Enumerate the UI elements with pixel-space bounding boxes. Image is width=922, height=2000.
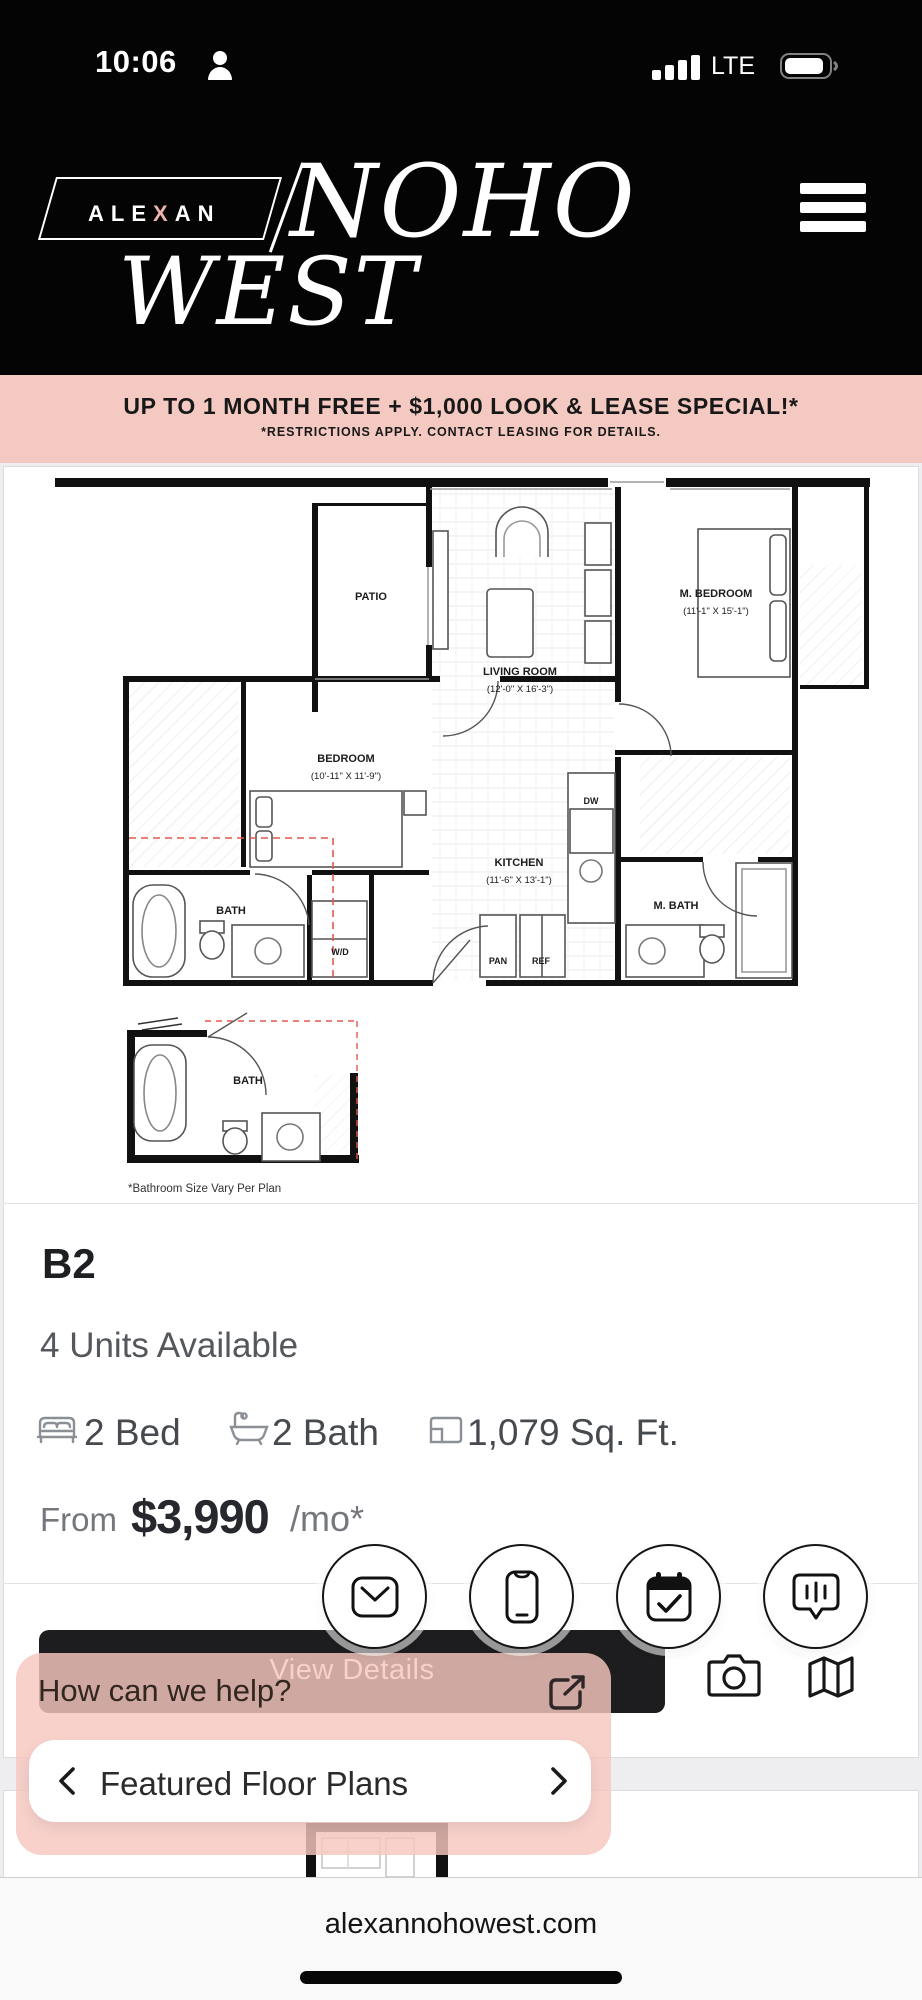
browser-url[interactable]: alexannohowest.com: [0, 1908, 922, 1941]
carousel-label: Featured Floor Plans: [100, 1765, 408, 1803]
brand-post: AN: [175, 201, 221, 226]
room-label: PATIO: [355, 591, 387, 603]
calendar-check-icon: [642, 1570, 696, 1624]
floor-plan-image: PATIO LIVING ROOM (12'-0" X 16'-3") M. B…: [0, 473, 922, 1203]
floorplan-caption: *Bathroom Size Vary Per Plan: [128, 1183, 281, 1195]
camera-icon[interactable]: [706, 1650, 762, 1700]
room-label: DW: [584, 796, 599, 806]
room-dims: (12'-0" X 16'-3"): [487, 684, 553, 695]
promo-line2: *RESTRICTIONS APPLY. CONTACT LEASING FOR…: [0, 425, 922, 439]
person-icon: [206, 50, 240, 82]
logo-noho: NOHO: [290, 152, 637, 252]
card-divider: [3, 1203, 919, 1204]
chat-bubble-icon: [790, 1571, 842, 1623]
room-label: M. BATH: [653, 900, 698, 912]
room-dims: (11'-1" X 15'-1"): [683, 606, 749, 617]
room-label: PAN: [489, 956, 507, 966]
phone-icon: [504, 1569, 540, 1625]
room-label: KITCHEN: [495, 857, 544, 869]
unit-sqft: 1,079 Sq. Ft.: [467, 1412, 679, 1454]
unit-baths: 2 Bath: [272, 1412, 379, 1454]
price-value: $3,990: [131, 1489, 269, 1544]
unit-availability: 4 Units Available: [40, 1326, 298, 1366]
chat-button[interactable]: [763, 1544, 868, 1649]
hamburger-menu-icon[interactable]: [800, 183, 866, 232]
mobile-screen: 10:06 LTE ALEXAN NOHO WEST UP TO 1 MONTH…: [0, 0, 922, 2000]
unit-name: B2: [42, 1240, 96, 1288]
signal-icon: [652, 52, 704, 80]
room-label: BATH: [216, 905, 246, 917]
status-time: 10:06: [95, 44, 177, 80]
room-dims: (10'-11" X 11'-9"): [311, 771, 381, 782]
alexan-logo-text[interactable]: ALEXAN: [88, 201, 220, 227]
sqft-icon: [428, 1415, 464, 1445]
room-label: W/D: [331, 947, 349, 957]
room-dims: (11'-6" X 13'-1"): [486, 875, 552, 886]
logo-west: WEST: [118, 246, 418, 340]
chevron-right-icon[interactable]: [548, 1766, 570, 1796]
room-label: BATH: [233, 1075, 263, 1087]
chat-prompt: How can we help?: [38, 1673, 291, 1709]
mail-icon: [350, 1574, 400, 1620]
bed-icon: [36, 1415, 78, 1445]
phone-button[interactable]: [469, 1544, 574, 1649]
bath-icon: [229, 1411, 269, 1445]
email-button[interactable]: [322, 1544, 427, 1649]
promo-line1: UP TO 1 MONTH FREE + $1,000 LOOK & LEASE…: [0, 393, 922, 420]
brand-x: X: [153, 201, 175, 226]
room-label: LIVING ROOM: [483, 666, 557, 678]
room-label: BEDROOM: [317, 753, 374, 765]
external-link-icon[interactable]: [548, 1675, 588, 1712]
browser-bottom-bar: alexannohowest.com: [0, 1877, 922, 2000]
room-label: REF: [532, 956, 551, 966]
chevron-left-icon[interactable]: [56, 1766, 78, 1796]
promo-banner[interactable]: UP TO 1 MONTH FREE + $1,000 LOOK & LEASE…: [0, 375, 922, 463]
schedule-tour-button[interactable]: [616, 1544, 721, 1649]
home-indicator[interactable]: [300, 1971, 622, 1984]
price-prefix: From: [40, 1501, 117, 1539]
header: 10:06 LTE ALEXAN NOHO WEST: [0, 0, 922, 375]
battery-icon: [780, 51, 842, 81]
network-type-label: LTE: [711, 52, 755, 81]
floorplan-map-icon[interactable]: [806, 1656, 860, 1700]
unit-beds: 2 Bed: [84, 1412, 181, 1454]
price-suffix: /mo*: [290, 1498, 364, 1540]
brand-pre: ALE: [88, 201, 153, 226]
room-label: M. BEDROOM: [680, 588, 753, 600]
